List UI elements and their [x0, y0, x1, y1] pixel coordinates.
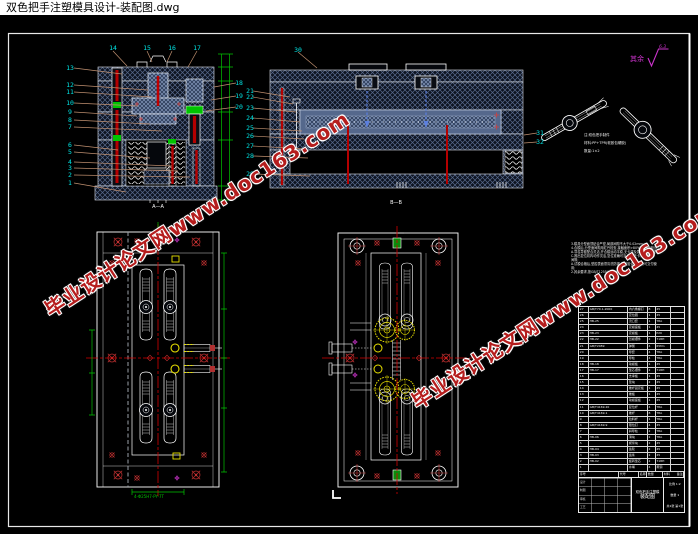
callout-number: 14 [109, 44, 117, 52]
callout-number: 24 [246, 114, 254, 122]
callout-number: 22 [246, 93, 254, 101]
cad-window: 双色把手注塑模具设计-装配图.dwg [0, 0, 698, 534]
callout-number: 1 [68, 179, 72, 187]
callout-number: 7 [68, 123, 72, 131]
titlebar: 双色把手注塑模具设计-装配图.dwg [0, 0, 698, 17]
callout-number: 2 [68, 171, 72, 179]
page-title: 双色把手注塑模具设计-装配图.dwg [6, 1, 179, 14]
callout-number: 32 [536, 138, 544, 146]
role-label: 工艺 [580, 503, 630, 511]
roughness-value: 6.3 [659, 44, 666, 50]
callout-number: 10 [66, 99, 74, 107]
callout-number: 23 [246, 104, 254, 112]
handle-part-notes: 注:双色把手制件材料:PP+TPR(软胶包硬胶)数量:1×2 [584, 131, 626, 155]
title-block-right: 比例 1:2 数量 1 共1张 第1张 [665, 478, 685, 512]
callout-number: 25 [246, 124, 254, 132]
callout-number: 15 [143, 44, 151, 52]
callout-number: 13 [66, 64, 74, 72]
rack [393, 340, 401, 380]
sheet-label: 共1张 第1张 [666, 504, 683, 508]
callout-number: 11 [66, 88, 74, 96]
callout-number: 26 [246, 132, 254, 140]
handle-note-line: 注:双色把手制件 [584, 131, 626, 139]
roughness-prefix-label: 其余 [630, 54, 644, 63]
role-label: 制图 [580, 486, 630, 494]
handle-note-line: 数量:1×2 [584, 147, 626, 155]
drawing-name: 装配图 [640, 494, 655, 501]
callout-number: 20 [235, 103, 243, 111]
parts-rows: 27 GB/T70.1-2000 内六角螺钉 8 45 26 定位圈 1 45 [579, 307, 684, 472]
callout-number: 16 [168, 44, 176, 52]
parts-list-table: 27 GB/T70.1-2000 内六角螺钉 8 45 26 定位圈 1 45 [578, 306, 685, 479]
callout-number: 18 [235, 79, 243, 87]
qty-label: 数量 1 [670, 493, 679, 497]
callout-number: 19 [235, 92, 243, 100]
section-corner-mark [333, 490, 341, 498]
handle-note-line: 材料:PP+TPR(软胶包硬胶) [584, 139, 626, 147]
surface-roughness-symbol: 其余 6.3 [630, 44, 669, 66]
role-label: 设计 [580, 478, 630, 486]
scale-label: 比例 1:2 [669, 482, 681, 486]
callout-number: 27 [246, 142, 254, 150]
callout-number: 31 [536, 129, 544, 137]
callout-number: 9 [68, 108, 72, 116]
green-dimension-note: 4-Φ25H7-PY-7T [134, 494, 165, 499]
callout-number: 30 [294, 46, 302, 54]
callout-number: 5 [68, 148, 72, 156]
title-block-center: 双色把手注塑模 装配图 [631, 478, 664, 512]
front-view-label: A—A [152, 204, 164, 210]
side-view-label: B—B [390, 200, 402, 206]
role-label: 审核 [580, 495, 630, 503]
title-block: 设计制图审核工艺 双色把手注塑模 装配图 比例 1:2 数量 1 共1张 第1张 [578, 477, 685, 513]
callout-number: 17 [193, 44, 201, 52]
title-block-roles: 设计制图审核工艺 [580, 478, 630, 512]
guide-pillar [112, 68, 122, 186]
